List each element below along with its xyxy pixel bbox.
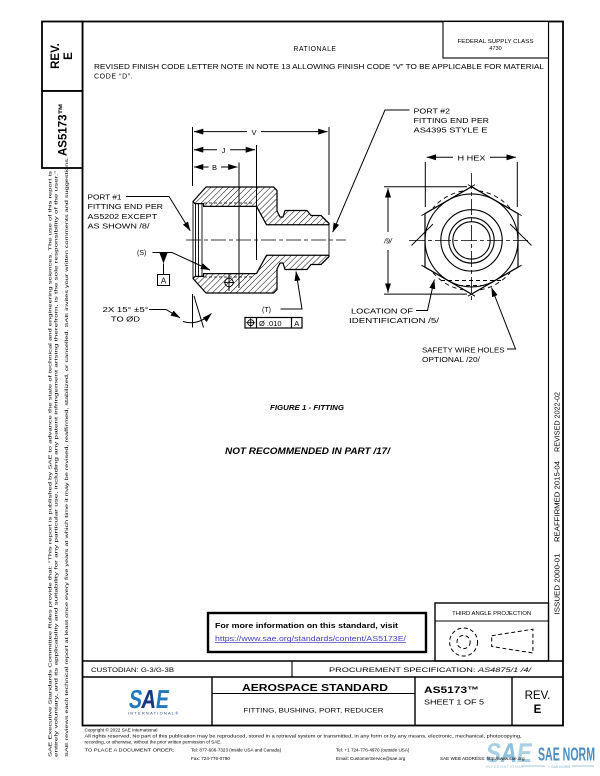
svg-text:CUSTODIAN: G-3/G-3B: CUSTODIAN: G-3/G-3B xyxy=(91,667,175,674)
svg-text:(T): (T) xyxy=(262,307,271,314)
svg-text:THIRD ANGLE PROJECTION: THIRD ANGLE PROJECTION xyxy=(452,611,531,617)
svg-text:FEDERAL SUPPLY CLASS: FEDERAL SUPPLY CLASS xyxy=(458,39,534,45)
svg-text:https://www.sae.org/standards/: https://www.sae.org/standards/content/AS… xyxy=(215,634,406,643)
svg-text:REAFFIRMED 2015-04: REAFFIRMED 2015-04 xyxy=(553,461,562,542)
svg-text:All rights reserved. No part o: All rights reserved. No part of this pub… xyxy=(85,734,522,739)
svg-text:SAFETY WIRE HOLES: SAFETY WIRE HOLES xyxy=(422,348,505,355)
svg-text:FITTING END PER: FITTING END PER xyxy=(88,204,164,211)
svg-text:SAE reviews each technical rep: SAE reviews each technical report at lea… xyxy=(64,157,69,757)
svg-text:TO ØD: TO ØD xyxy=(111,317,140,324)
svg-text:entirely voluntary, and its ap: entirely voluntary, and its applicabilit… xyxy=(54,170,59,757)
svg-text:AS4395 STYLE E: AS4395 STYLE E xyxy=(414,128,488,135)
svg-text:NOT RECOMMENDED IN PART /17/: NOT RECOMMENDED IN PART /17/ xyxy=(225,446,391,457)
svg-text:SHEET 1 OF 5: SHEET 1 OF 5 xyxy=(424,700,484,707)
svg-text:SAE Executive Standards Commit: SAE Executive Standards Committee Rules … xyxy=(48,171,53,757)
svg-text:REVISED FINISH CODE LETTER NOT: REVISED FINISH CODE LETTER NOTE IN NOTE … xyxy=(94,64,544,71)
svg-text:FITTING END PER: FITTING END PER xyxy=(414,118,490,125)
svg-text:PORT #1: PORT #1 xyxy=(88,195,122,202)
svg-text:TO PLACE A DOCUMENT ORDER:: TO PLACE A DOCUMENT ORDER: xyxy=(85,748,175,753)
svg-text:PROCUREMENT SPECIFICATION: AS4: PROCUREMENT SPECIFICATION: AS4875/1 /4/ xyxy=(329,667,533,674)
svg-text:FIGURE 1 - FITTING: FIGURE 1 - FITTING xyxy=(270,405,345,412)
svg-text:Tel: 877-606-7323 (insi: Tel: 877-606-7323 (inside USA and Canada… xyxy=(191,748,282,753)
svg-text:Email: CustomerService@sae.or: Email: CustomerService@sae.org xyxy=(336,756,406,761)
svg-text:SAE WEB ADDRESS: http://www.s: SAE WEB ADDRESS: http://www.sae.org xyxy=(440,756,525,761)
svg-text:Ø .010: Ø .010 xyxy=(259,319,282,328)
svg-text:Fax: 724-776-0790: Fax: 724-776-0790 xyxy=(191,756,230,761)
svg-text:recording, or otherwise, witho: recording, or otherwise, without the pri… xyxy=(85,740,222,745)
svg-text:PORT #2: PORT #2 xyxy=(414,109,451,116)
svg-text:A: A xyxy=(294,319,299,328)
svg-text:INTERNATIONAL®: INTERNATIONAL® xyxy=(128,711,179,716)
svg-text:V: V xyxy=(251,128,256,137)
svg-text:INTERNATIONAL.: INTERNATIONAL. xyxy=(486,765,527,769)
svg-text:RATIONALE: RATIONALE xyxy=(294,46,337,53)
svg-text:Tel: +1 724-776-4970 (ou: Tel: +1 724-776-4970 (outside USA) xyxy=(336,748,410,753)
svg-text:AS5173™: AS5173™ xyxy=(424,685,479,696)
svg-text:ISSUED 2000-01: ISSUED 2000-01 xyxy=(553,554,562,615)
svg-text:AEROSPACE STANDARD: AEROSPACE STANDARD xyxy=(242,682,388,694)
svg-text:(S): (S) xyxy=(137,250,146,257)
svg-text:E: E xyxy=(63,52,75,60)
svg-text:SAE NORM: SAE NORM xyxy=(538,744,595,765)
svg-text:AS SHOWN /8/: AS SHOWN /8/ xyxy=(88,224,150,231)
svg-text:OPTIONAL /20/: OPTIONAL /20/ xyxy=(422,357,480,364)
svg-text:2X 15° ±5°: 2X 15° ±5° xyxy=(103,306,149,314)
svg-text:H HEX: H HEX xyxy=(458,155,486,162)
svg-text:/9/: /9/ xyxy=(383,239,393,246)
svg-text:AS5202 EXCEPT: AS5202 EXCEPT xyxy=(88,214,158,221)
svg-text:> SAE NORM: > SAE NORM xyxy=(548,765,570,769)
svg-text:LOCATION OF: LOCATION OF xyxy=(351,309,413,316)
svg-text:REVISED 2022-02: REVISED 2022-02 xyxy=(553,392,562,452)
svg-text:Copyright © 2022 SAE Internati: Copyright © 2022 SAE International xyxy=(85,727,158,733)
svg-text:FITTING, BUSHING, PORT, REDUCE: FITTING, BUSHING, PORT, REDUCER xyxy=(244,708,384,715)
svg-text:AS5173™: AS5173™ xyxy=(58,103,70,156)
svg-text:J: J xyxy=(222,146,226,155)
svg-text:CODE “D”.: CODE “D”. xyxy=(94,74,133,81)
svg-text:REV.: REV. xyxy=(50,43,62,69)
svg-text:REV.: REV. xyxy=(525,690,551,702)
svg-text:E: E xyxy=(534,704,542,716)
svg-text:For more information on this s: For more information on this standard, v… xyxy=(215,621,399,630)
svg-text:4730: 4730 xyxy=(489,46,501,52)
svg-text:IDENTIFICATION /5/: IDENTIFICATION /5/ xyxy=(349,318,439,325)
svg-text:B: B xyxy=(212,163,217,172)
svg-text:A: A xyxy=(161,277,167,286)
